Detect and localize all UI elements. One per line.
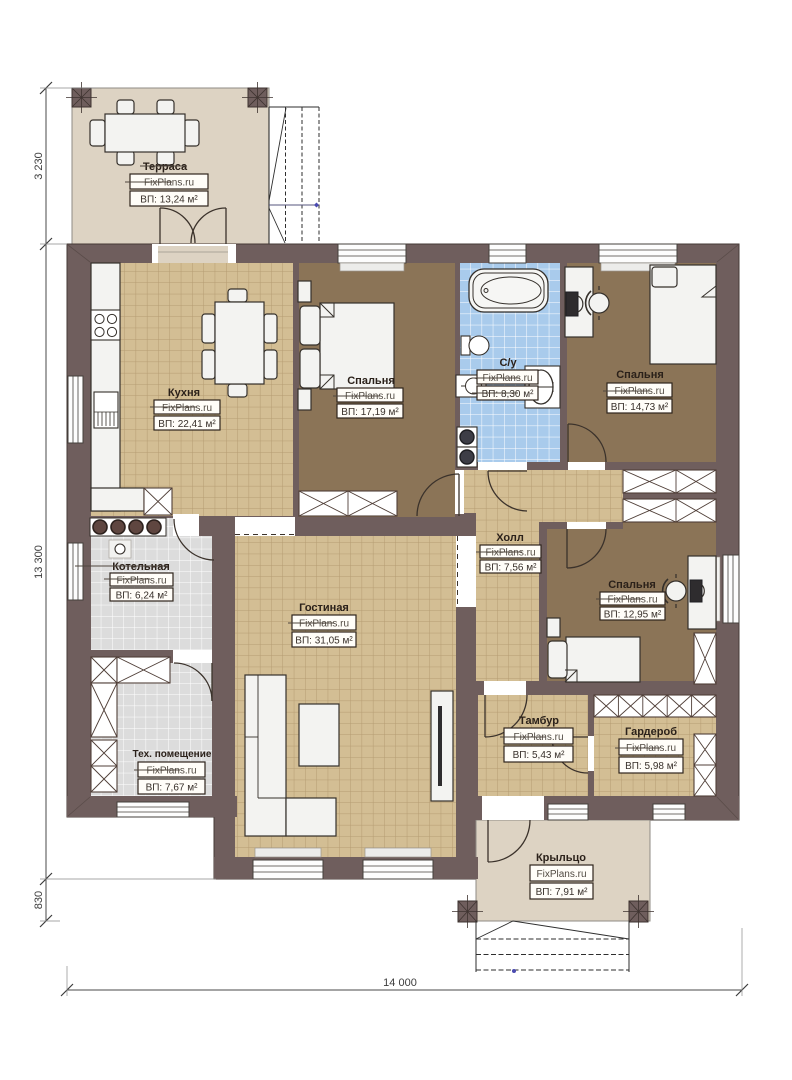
- svg-text:13 300: 13 300: [33, 545, 45, 579]
- svg-text:14 000: 14 000: [383, 977, 417, 989]
- svg-text:ВП: 14,73 м²: ВП: 14,73 м²: [611, 402, 669, 413]
- svg-text:830: 830: [33, 891, 45, 909]
- svg-text:ВП: 13,24 м²: ВП: 13,24 м²: [140, 195, 198, 206]
- svg-text:ВП: 5,98 м²: ВП: 5,98 м²: [625, 761, 678, 772]
- svg-text:3 230: 3 230: [33, 152, 45, 180]
- svg-text:Тамбур: Тамбур: [519, 715, 559, 727]
- svg-text:Крыльцо: Крыльцо: [536, 852, 586, 864]
- svg-text:ВП: 12,95 м²: ВП: 12,95 м²: [604, 610, 662, 621]
- svg-text:Гардероб: Гардероб: [625, 726, 677, 738]
- svg-text:ВП: 8,30 м²: ВП: 8,30 м²: [482, 389, 535, 400]
- svg-text:Спальня: Спальня: [347, 375, 395, 387]
- svg-text:Котельная: Котельная: [112, 561, 170, 573]
- svg-text:ВП: 7,91 м²: ВП: 7,91 м²: [536, 887, 589, 898]
- svg-text:FixPlans.ru: FixPlans.ru: [144, 178, 194, 189]
- svg-text:Спальня: Спальня: [608, 579, 656, 591]
- svg-text:FixPlans.ru: FixPlans.ru: [116, 576, 166, 587]
- svg-text:ВП: 17,19 м²: ВП: 17,19 м²: [341, 407, 399, 418]
- svg-text:FixPlans.ru: FixPlans.ru: [607, 595, 657, 606]
- svg-text:ВП: 31,05 м²: ВП: 31,05 м²: [295, 636, 353, 647]
- svg-text:ВП: 7,67 м²: ВП: 7,67 м²: [146, 783, 199, 794]
- svg-text:Спальня: Спальня: [616, 369, 664, 381]
- svg-text:ВП: 7,56 м²: ВП: 7,56 м²: [485, 563, 538, 574]
- svg-text:Терраса: Терраса: [143, 161, 188, 173]
- svg-text:ВП: 6,24 м²: ВП: 6,24 м²: [116, 591, 169, 602]
- svg-text:Тех. помещение: Тех. помещение: [133, 749, 212, 760]
- svg-text:FixPlans.ru: FixPlans.ru: [485, 548, 535, 559]
- svg-text:Гостиная: Гостиная: [299, 602, 349, 614]
- svg-text:Холл: Холл: [496, 532, 524, 544]
- svg-text:FixPlans.ru: FixPlans.ru: [536, 869, 586, 880]
- svg-text:FixPlans.ru: FixPlans.ru: [146, 766, 196, 777]
- svg-text:FixPlans.ru: FixPlans.ru: [162, 403, 212, 414]
- svg-text:FixPlans.ru: FixPlans.ru: [299, 619, 349, 630]
- svg-text:ВП: 22,41 м²: ВП: 22,41 м²: [158, 419, 216, 430]
- svg-text:ВП: 5,43 м²: ВП: 5,43 м²: [513, 750, 566, 761]
- svg-text:С/у: С/у: [499, 357, 517, 369]
- svg-text:Кухня: Кухня: [168, 387, 200, 399]
